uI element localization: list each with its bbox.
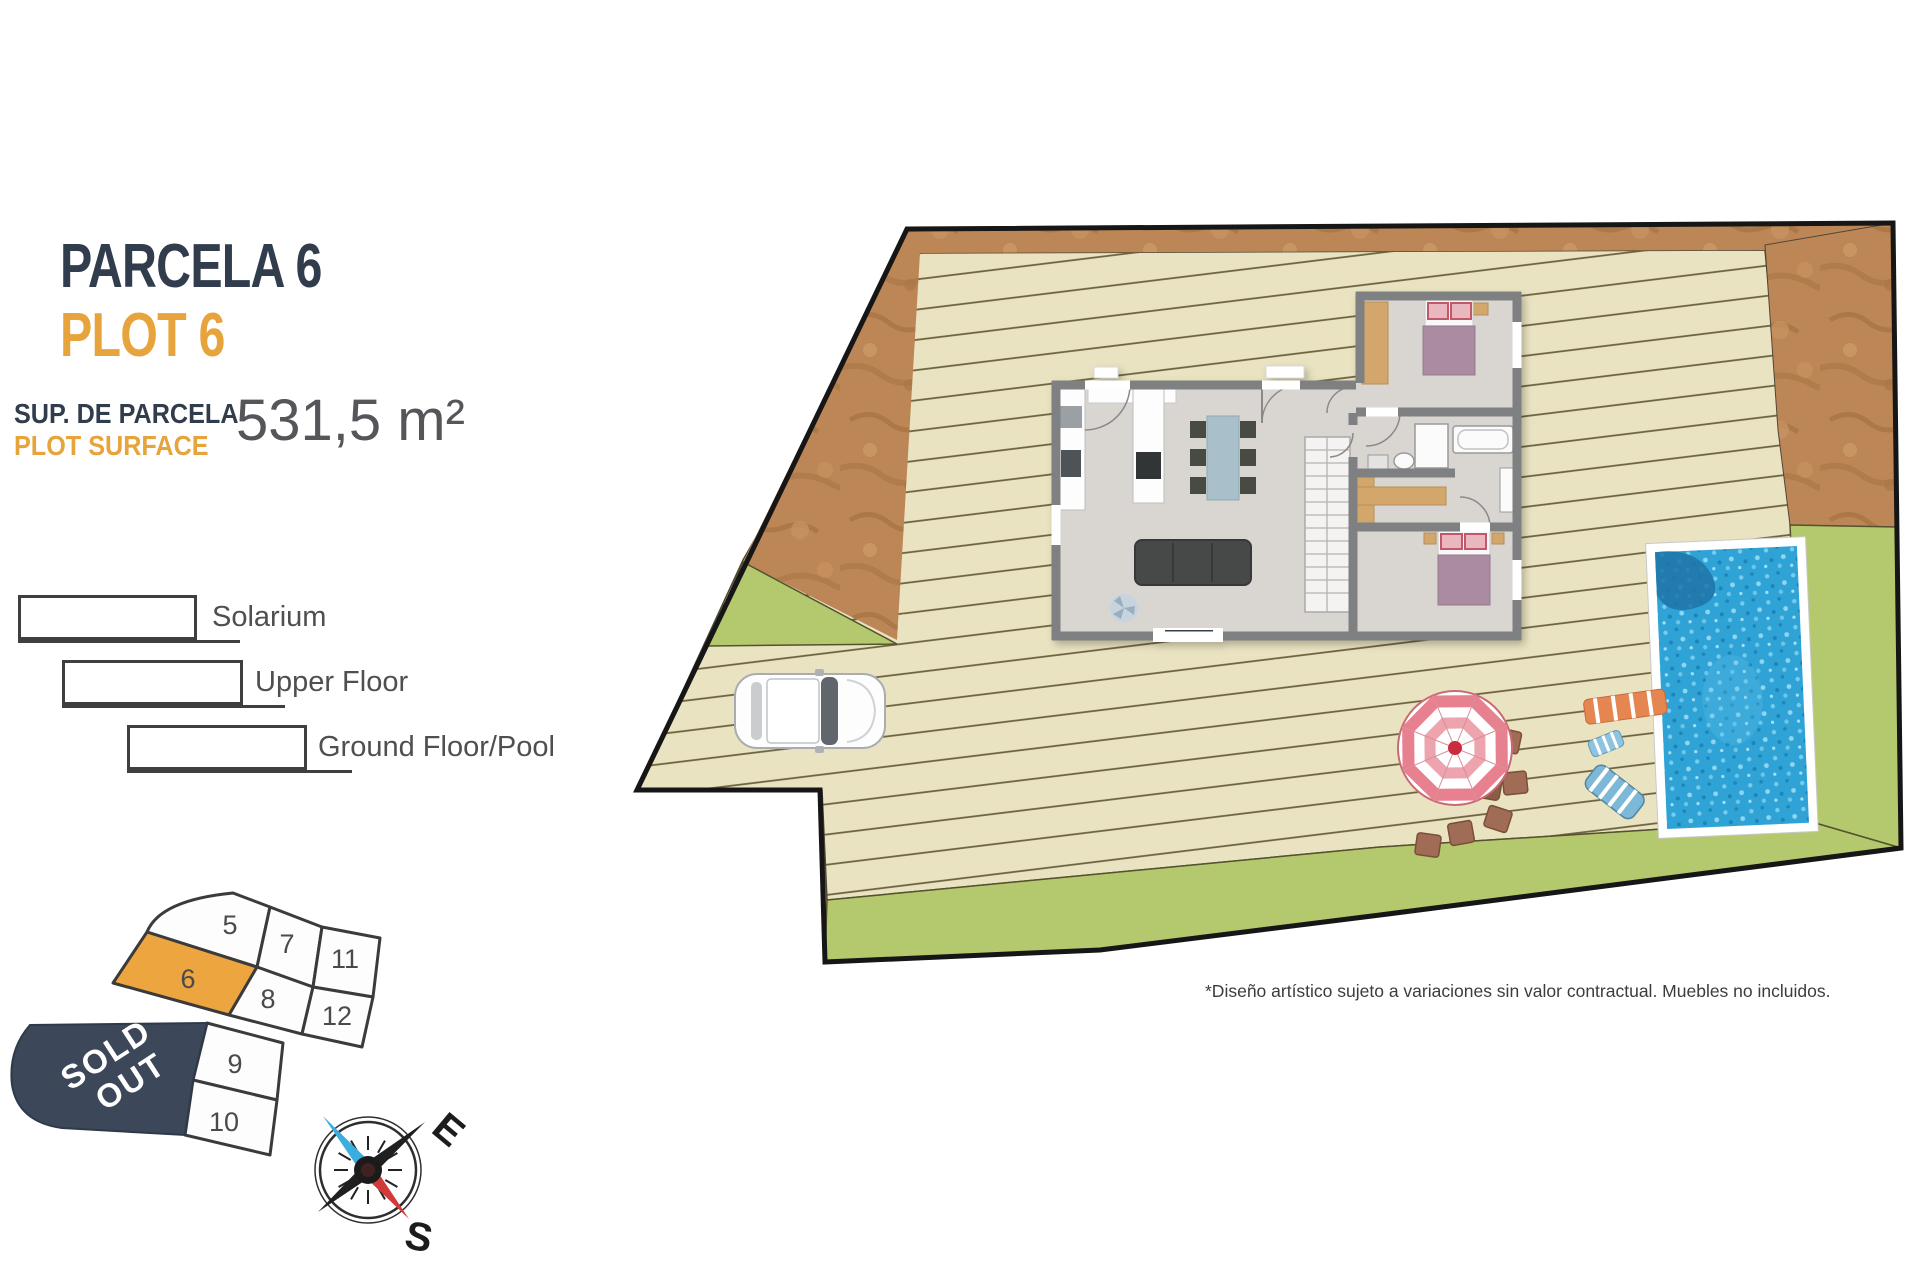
legend-line bbox=[62, 705, 285, 708]
key-plot-label-9: 9 bbox=[227, 1049, 242, 1079]
sink bbox=[1394, 453, 1414, 469]
key-plot-label-5: 5 bbox=[222, 910, 237, 940]
compass-rose: E S bbox=[315, 1105, 473, 1262]
cooktop bbox=[1136, 452, 1161, 479]
legend-swatch-upper-floor bbox=[62, 660, 243, 705]
terrain-right-band bbox=[1765, 223, 1897, 527]
bedroom-1 bbox=[1362, 300, 1488, 384]
legend-line bbox=[18, 640, 240, 643]
dining-table bbox=[1190, 416, 1256, 500]
windshield bbox=[821, 677, 838, 745]
doormat bbox=[1094, 367, 1118, 378]
legend-swatch-ground-floor-pool bbox=[127, 725, 307, 770]
pillow bbox=[1465, 534, 1486, 549]
sofa bbox=[1135, 540, 1251, 585]
shower bbox=[1415, 424, 1448, 468]
surface-label-es: SUP. DE PARCELA bbox=[14, 399, 239, 428]
ceiling-fan-icon bbox=[1110, 594, 1138, 622]
disclaimer-text: *Diseño artístico sujeto a variaciones s… bbox=[1205, 981, 1830, 1002]
surface-label-en: PLOT SURFACE bbox=[14, 431, 209, 460]
bed bbox=[1438, 555, 1490, 605]
car bbox=[735, 669, 885, 753]
pillow bbox=[1428, 303, 1448, 319]
compass-south-label: S bbox=[401, 1213, 436, 1262]
key-plot-label-10: 10 bbox=[209, 1107, 239, 1137]
title-plot: PLOT 6 bbox=[60, 305, 225, 367]
doormat bbox=[1266, 366, 1304, 378]
key-plan: 5 7 11 6 8 12 9 10 SOLD OUT bbox=[11, 893, 380, 1155]
legend-label-solarium: Solarium bbox=[212, 602, 326, 634]
bath-cabinet bbox=[1500, 468, 1514, 512]
key-plot-label-11: 11 bbox=[331, 944, 359, 974]
pool bbox=[1646, 537, 1819, 839]
surface-value: 531,5 m² bbox=[236, 392, 465, 450]
kitchen-island bbox=[1133, 388, 1164, 503]
title-parcela: PARCELA 6 bbox=[60, 236, 322, 298]
wardrobe bbox=[1362, 302, 1388, 384]
key-plot-label-12: 12 bbox=[322, 1001, 352, 1031]
legend-label-upper-floor: Upper Floor bbox=[255, 667, 408, 699]
legend-swatch-solarium bbox=[18, 595, 197, 640]
key-plot-label-8: 8 bbox=[260, 984, 275, 1014]
key-plot-label-7: 7 bbox=[279, 929, 294, 959]
staircase bbox=[1305, 437, 1350, 612]
mirror bbox=[815, 746, 824, 753]
legend-label-ground-floor-pool: Ground Floor/Pool bbox=[318, 732, 555, 764]
bed bbox=[1423, 326, 1475, 375]
plot-plan-page: 5 7 11 6 8 12 9 10 SOLD OUT bbox=[0, 0, 1920, 1280]
pillow bbox=[1451, 303, 1471, 319]
compass-east-label: E bbox=[424, 1105, 473, 1156]
legend-line bbox=[127, 770, 352, 773]
site-plan-svg: 5 7 11 6 8 12 9 10 SOLD OUT bbox=[0, 0, 1920, 1280]
mirror bbox=[815, 669, 824, 676]
toilet bbox=[1368, 455, 1388, 469]
pillow bbox=[1441, 534, 1462, 549]
key-plot-label-6: 6 bbox=[180, 964, 195, 994]
